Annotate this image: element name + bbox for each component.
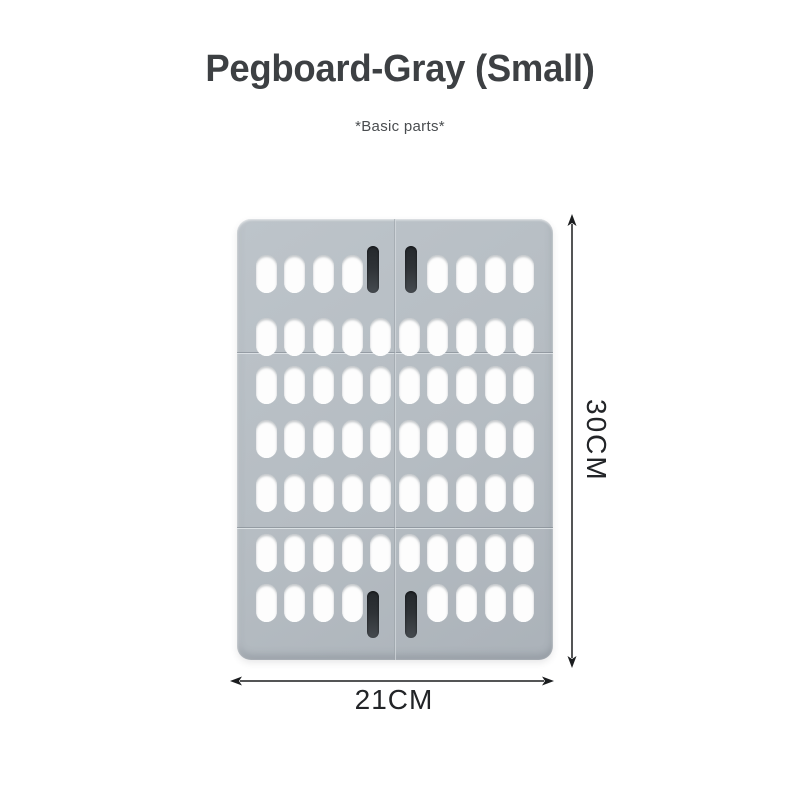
- slot-cell: [424, 318, 453, 356]
- slot-cell: [395, 366, 424, 404]
- slot-cell: [338, 318, 367, 356]
- hook-slot: [405, 246, 417, 293]
- slot-cell: [452, 584, 481, 622]
- peg-hole: [342, 420, 363, 458]
- slot-cell: [252, 534, 281, 572]
- peg-hole: [456, 255, 477, 293]
- peg-hole: [313, 366, 334, 404]
- peg-hole: [284, 366, 305, 404]
- slot-cell: [338, 420, 367, 458]
- peg-hole: [456, 584, 477, 622]
- peg-hole: [284, 318, 305, 356]
- height-dimension-arrow: [564, 213, 580, 669]
- page-subtitle: *Basic parts*: [0, 118, 800, 135]
- peg-hole: [313, 584, 334, 622]
- slot-cell: [509, 474, 538, 512]
- peg-hole: [256, 534, 277, 572]
- pegboard: [237, 219, 553, 660]
- slot-cell: [395, 420, 424, 458]
- slot-cell: [281, 255, 310, 293]
- slot-cell: [252, 420, 281, 458]
- peg-hole: [399, 318, 420, 356]
- page-title: Pegboard-Gray (Small): [16, 48, 784, 91]
- slot-cell: [481, 474, 510, 512]
- peg-hole: [485, 534, 506, 572]
- slot-cell: [481, 584, 510, 622]
- slot-cell: [366, 318, 395, 356]
- slot-cell: [309, 366, 338, 404]
- slot-cell: [481, 366, 510, 404]
- peg-hole: [456, 474, 477, 512]
- peg-hole: [370, 318, 391, 356]
- peg-hole: [256, 255, 277, 293]
- peg-hole: [456, 420, 477, 458]
- slot-cell: [338, 584, 367, 622]
- slot-cell: [424, 255, 453, 293]
- peg-hole: [399, 366, 420, 404]
- peg-hole: [313, 534, 334, 572]
- slot-cell: [366, 584, 395, 622]
- slot-cell: [452, 420, 481, 458]
- slot-cell: [452, 318, 481, 356]
- peg-hole: [284, 255, 305, 293]
- slot-cell: [366, 420, 395, 458]
- peg-hole: [342, 255, 363, 293]
- peg-hole: [284, 474, 305, 512]
- slot-cell: [281, 318, 310, 356]
- peg-hole: [513, 584, 534, 622]
- peg-hole: [284, 420, 305, 458]
- peg-hole: [256, 474, 277, 512]
- peg-hole: [399, 420, 420, 458]
- slot-cell: [338, 366, 367, 404]
- slot-cell: [309, 584, 338, 622]
- slot-cell: [281, 420, 310, 458]
- slot-cell: [395, 534, 424, 572]
- slot-cell: [309, 534, 338, 572]
- height-dimension-label: 30CM: [580, 399, 612, 482]
- peg-hole: [370, 420, 391, 458]
- slot-cell: [309, 255, 338, 293]
- hook-slot: [405, 591, 417, 638]
- peg-hole: [485, 420, 506, 458]
- peg-hole: [256, 420, 277, 458]
- peg-hole: [485, 584, 506, 622]
- peg-hole: [313, 318, 334, 356]
- slot-cell: [366, 255, 395, 293]
- slot-cell: [481, 534, 510, 572]
- peg-hole: [485, 474, 506, 512]
- peg-hole: [342, 318, 363, 356]
- slot-cell: [452, 366, 481, 404]
- peg-hole: [456, 366, 477, 404]
- slot-cell: [395, 318, 424, 356]
- peg-hole: [427, 318, 448, 356]
- slot-cell: [309, 420, 338, 458]
- peg-hole: [313, 255, 334, 293]
- slot-cell: [452, 255, 481, 293]
- hook-slot: [367, 246, 379, 293]
- peg-hole: [485, 366, 506, 404]
- peg-hole: [427, 420, 448, 458]
- slot-cell: [481, 420, 510, 458]
- peg-hole: [284, 584, 305, 622]
- peg-hole: [256, 366, 277, 404]
- slot-cell: [338, 534, 367, 572]
- peg-hole: [370, 474, 391, 512]
- peg-hole: [513, 255, 534, 293]
- slot-cell: [424, 584, 453, 622]
- peg-hole: [513, 420, 534, 458]
- slot-cell: [366, 366, 395, 404]
- peg-hole: [256, 318, 277, 356]
- slot-cell: [281, 584, 310, 622]
- slot-cell: [481, 255, 510, 293]
- peg-hole: [370, 534, 391, 572]
- peg-hole: [485, 318, 506, 356]
- slot-cell: [281, 366, 310, 404]
- slot-cell: [481, 318, 510, 356]
- slot-cell: [509, 318, 538, 356]
- width-dimension-label: 21CM: [294, 684, 494, 716]
- slot-cell: [509, 584, 538, 622]
- slot-cell: [424, 534, 453, 572]
- slot-cell: [252, 584, 281, 622]
- peg-hole: [456, 534, 477, 572]
- peg-hole: [342, 474, 363, 512]
- peg-hole: [427, 474, 448, 512]
- slot-cell: [252, 255, 281, 293]
- peg-hole: [427, 255, 448, 293]
- slot-cell: [424, 366, 453, 404]
- slot-cell: [424, 474, 453, 512]
- peg-hole: [313, 474, 334, 512]
- slot-cell: [395, 584, 424, 622]
- slot-cell: [309, 474, 338, 512]
- slot-cell: [509, 255, 538, 293]
- slot-cell: [338, 255, 367, 293]
- slot-cell: [452, 534, 481, 572]
- peg-hole: [399, 534, 420, 572]
- slot-cell: [509, 366, 538, 404]
- hook-slot: [367, 591, 379, 638]
- slot-cell: [252, 366, 281, 404]
- peg-hole: [342, 584, 363, 622]
- peg-hole: [427, 366, 448, 404]
- peg-hole: [456, 318, 477, 356]
- peg-hole: [513, 474, 534, 512]
- peg-hole: [342, 534, 363, 572]
- center-seam: [394, 219, 396, 660]
- slot-cell: [252, 318, 281, 356]
- peg-hole: [513, 318, 534, 356]
- peg-hole: [513, 534, 534, 572]
- peg-hole: [399, 474, 420, 512]
- slot-cell: [509, 420, 538, 458]
- slot-cell: [338, 474, 367, 512]
- peg-hole: [513, 366, 534, 404]
- peg-hole: [427, 534, 448, 572]
- slot-cell: [395, 474, 424, 512]
- slot-cell: [281, 474, 310, 512]
- product-figure: Pegboard-Gray (Small) *Basic parts* 30CM…: [0, 0, 800, 800]
- peg-hole: [427, 584, 448, 622]
- peg-hole: [313, 420, 334, 458]
- slot-cell: [509, 534, 538, 572]
- slot-cell: [452, 474, 481, 512]
- peg-hole: [256, 584, 277, 622]
- slot-cell: [252, 474, 281, 512]
- peg-hole: [284, 534, 305, 572]
- peg-hole: [342, 366, 363, 404]
- slot-cell: [395, 255, 424, 293]
- peg-hole: [370, 366, 391, 404]
- slot-cell: [424, 420, 453, 458]
- slot-cell: [366, 474, 395, 512]
- slot-cell: [281, 534, 310, 572]
- slot-cell: [366, 534, 395, 572]
- peg-hole: [485, 255, 506, 293]
- slot-cell: [309, 318, 338, 356]
